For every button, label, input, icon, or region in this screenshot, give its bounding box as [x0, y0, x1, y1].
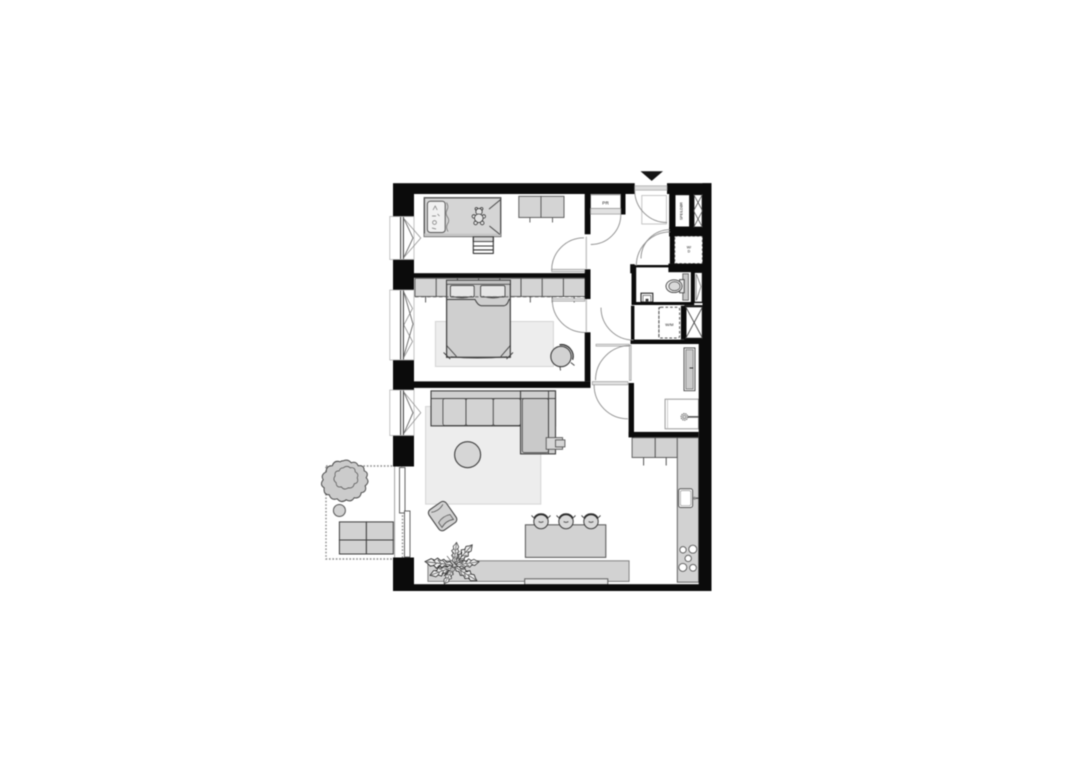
svg-text:W/: W/ [687, 245, 691, 249]
svg-text:W/M: W/M [665, 322, 673, 327]
svg-text:SPEILDØR: SPEILDØR [679, 202, 683, 220]
svg-text:PR: PR [602, 201, 609, 206]
svg-text:D: D [688, 250, 691, 254]
